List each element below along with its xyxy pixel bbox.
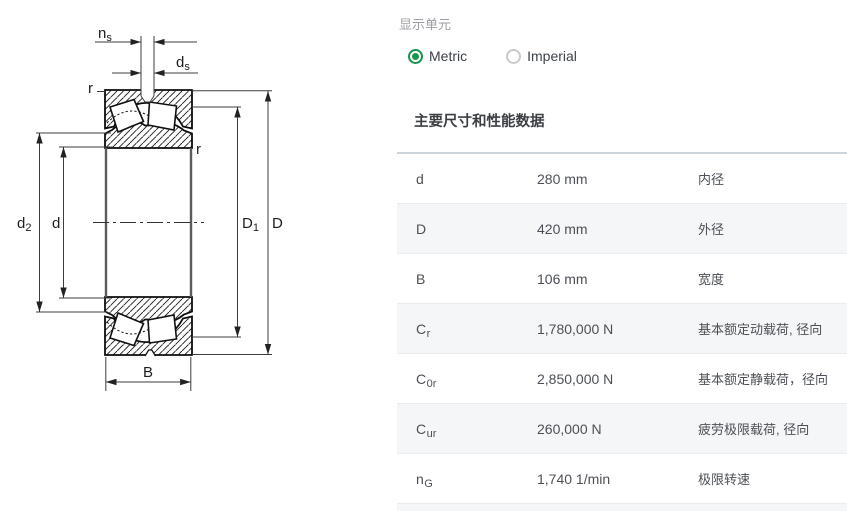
row-description: 宽度 xyxy=(698,269,847,288)
spec-table: d 280 mm 内径 D 420 mm 外径 B 106 mm 宽度 Cr 1… xyxy=(397,152,847,511)
row-symbol: Cr xyxy=(416,321,537,337)
dim-label-ds: ds xyxy=(176,54,190,73)
dim-label-d: d xyxy=(52,215,60,232)
row-symbol: nG xyxy=(416,471,537,487)
row-value: 106 mm xyxy=(537,271,698,287)
radio-option-imperial[interactable]: Imperial xyxy=(506,48,577,64)
dim-label-B: B xyxy=(143,364,153,381)
table-row: Cur 260,000 N 疲劳极限载荷, 径向 xyxy=(397,404,847,454)
row-description: 外径 xyxy=(698,219,847,238)
bearing-cross-section-drawing: ns ds d2 d D1 D B r r xyxy=(0,0,390,503)
row-description: 基本额定动载荷, 径向 xyxy=(698,319,847,338)
radio-imperial-control[interactable] xyxy=(506,49,521,64)
row-symbol: d xyxy=(416,171,537,187)
radio-selected-dot xyxy=(412,53,419,60)
section-title: 主要尺寸和性能数据 xyxy=(414,110,847,131)
table-row: C0r 2,850,000 N 基本额定静载荷，径向 xyxy=(397,354,847,404)
row-description: 基本额定静载荷，径向 xyxy=(698,369,847,388)
row-value: 420 mm xyxy=(537,221,698,237)
table-row: B 106 mm 宽度 xyxy=(397,254,847,304)
table-row: nG 1,740 1/min 极限转速 xyxy=(397,454,847,504)
radio-imperial-label: Imperial xyxy=(527,48,577,64)
units-radio-group: Metric Imperial xyxy=(408,48,847,64)
table-row: D 420 mm 外径 xyxy=(397,204,847,254)
roller-right-top xyxy=(148,102,177,130)
table-row-partial xyxy=(397,504,847,511)
row-symbol: D xyxy=(416,221,537,237)
chamfer-label-r-top: r xyxy=(88,80,93,97)
dim-label-ns: ns xyxy=(98,25,112,44)
table-row: Cr 1,780,000 N 基本额定动载荷, 径向 xyxy=(397,304,847,354)
row-value: 1,740 1/min xyxy=(537,471,698,487)
dim-label-D1: D1 xyxy=(242,215,259,234)
row-value: 1,780,000 N xyxy=(537,321,698,337)
row-description: 内径 xyxy=(698,169,847,188)
units-section-label: 显示单元 xyxy=(399,14,847,33)
row-value: 260,000 N xyxy=(537,421,698,437)
radio-metric-control[interactable] xyxy=(408,49,423,64)
bearing-section-top xyxy=(105,36,192,148)
row-value: 2,850,000 N xyxy=(537,371,698,387)
row-symbol: C0r xyxy=(416,371,537,387)
radio-option-metric[interactable]: Metric xyxy=(408,48,467,64)
row-symbol: B xyxy=(416,271,537,287)
row-value: 280 mm xyxy=(537,171,698,187)
dim-label-D: D xyxy=(272,215,283,232)
row-symbol: Cur xyxy=(416,421,537,437)
bearing-section-bottom xyxy=(105,297,192,356)
table-row: d 280 mm 内径 xyxy=(397,154,847,204)
chamfer-label-r-bottom: r xyxy=(196,141,201,158)
row-description: 疲劳极限载荷, 径向 xyxy=(698,419,847,438)
specification-panel: 显示单元 Metric Imperial 主要尺寸和性能数据 d 280 mm … xyxy=(390,0,847,503)
row-description: 极限转速 xyxy=(698,469,847,488)
roller-right-bottom xyxy=(148,315,177,343)
dim-label-d2: d2 xyxy=(17,215,31,234)
bearing-drawing-pane: ns ds d2 d D1 D B r r xyxy=(0,0,390,503)
radio-metric-label: Metric xyxy=(429,48,467,64)
